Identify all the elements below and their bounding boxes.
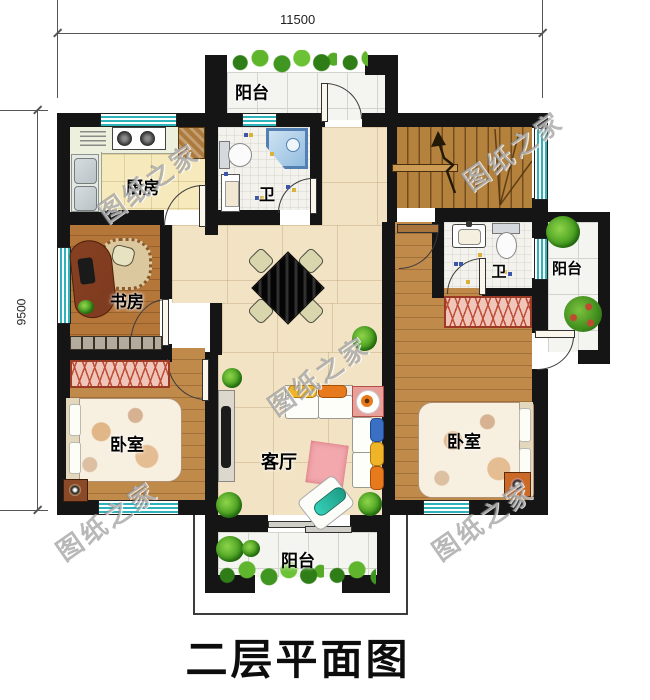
- door-arc: [537, 336, 574, 370]
- bookshelf: [70, 336, 162, 350]
- sliding-door: [305, 526, 352, 533]
- dimension-tick: [57, 0, 58, 98]
- lower-floor-outline: [406, 515, 408, 615]
- sofa-seat: [318, 395, 353, 419]
- window: [534, 238, 548, 280]
- plant: [242, 540, 260, 557]
- shower-head: [286, 138, 300, 152]
- sink-faucet: [466, 221, 472, 227]
- dimension-height-value: 9500: [14, 299, 28, 326]
- dimension-tick: [0, 110, 48, 111]
- door-leaf: [310, 178, 317, 214]
- door-leaf: [321, 83, 328, 122]
- wall: [57, 113, 70, 247]
- stove-burner: [140, 131, 155, 146]
- vent-grate: [80, 131, 106, 146]
- plant: [222, 368, 242, 388]
- floor-plan: 11500 9500: [0, 0, 650, 700]
- door-leaf: [397, 224, 439, 233]
- wall: [160, 225, 172, 299]
- sofa-pillow-blue: [370, 418, 384, 442]
- door-leaf: [479, 258, 486, 295]
- sofa-pillow-orange: [370, 466, 384, 490]
- sink-basin: [225, 181, 239, 207]
- wall: [387, 208, 397, 222]
- room-label-balcony-bottom: 阳台: [281, 547, 315, 572]
- pillow: [69, 404, 81, 436]
- plant: [546, 216, 580, 248]
- dimension-tick: [542, 0, 543, 98]
- wall: [210, 303, 222, 355]
- wall: [578, 350, 610, 364]
- lower-floor-outline: [193, 613, 408, 615]
- stove-burner: [117, 131, 132, 146]
- plant: [564, 296, 602, 332]
- dimension-width-value: 11500: [280, 12, 315, 27]
- sink-basin: [74, 158, 97, 184]
- plant: [216, 536, 244, 562]
- window: [100, 113, 177, 127]
- dimension-tick: [0, 510, 48, 511]
- plant: [216, 492, 242, 518]
- mosaic-tiles: [448, 250, 452, 254]
- door-leaf: [202, 359, 209, 401]
- sofa-pillow-yellow: [370, 442, 384, 466]
- room-label-bedroom-right: 卧室: [447, 428, 481, 453]
- wall: [203, 210, 280, 225]
- lamp: [69, 484, 81, 496]
- wall: [435, 208, 548, 222]
- plant: [78, 300, 94, 314]
- dimension-line-left: [37, 110, 38, 510]
- wall: [598, 212, 610, 360]
- room-label-bedroom-left: 卧室: [110, 431, 144, 456]
- pillow: [69, 442, 81, 474]
- plant: [358, 492, 382, 516]
- door-leaf: [199, 185, 206, 227]
- hedge: [227, 50, 368, 73]
- wall: [532, 278, 548, 333]
- room-label-balcony-right: 阳台: [552, 258, 582, 279]
- hallway-floor: [322, 127, 387, 225]
- wall: [205, 55, 227, 120]
- side-table-bowl: [361, 395, 373, 407]
- wardrobe: [444, 296, 532, 328]
- room-label-bath-top: 卫: [259, 181, 275, 205]
- room-label-bath-right: 卫: [491, 261, 506, 282]
- pillow: [519, 408, 531, 442]
- room-label-study: 书房: [110, 288, 144, 313]
- room-label-balcony-top: 阳台: [235, 79, 269, 104]
- wardrobe: [70, 360, 170, 388]
- page-title: 二层平面图: [185, 626, 410, 687]
- door-leaf: [535, 330, 575, 338]
- mosaic-tiles: [222, 130, 226, 134]
- room-label-living: 客厅: [261, 448, 297, 474]
- toilet-bowl: [496, 232, 517, 259]
- toilet-bowl: [228, 143, 252, 167]
- dimension-line-top: [57, 33, 542, 34]
- sink-basin: [458, 229, 481, 245]
- door-leaf: [162, 299, 169, 346]
- wall: [177, 500, 205, 515]
- lower-floor-outline: [193, 515, 195, 615]
- tv: [221, 406, 231, 468]
- window: [242, 113, 277, 127]
